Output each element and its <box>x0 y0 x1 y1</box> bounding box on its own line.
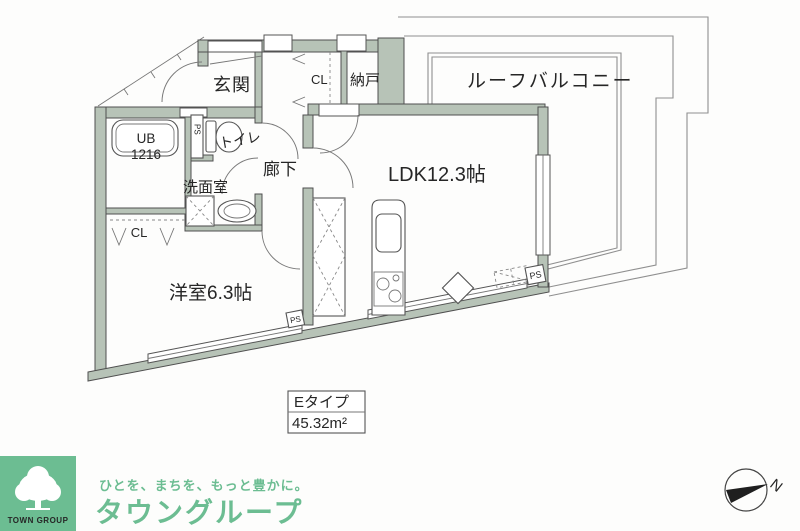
site-boundary-line <box>98 37 204 106</box>
lower-closet-marks <box>110 220 188 245</box>
logo-tagline: ひとを、まちを、もっと豊かに。 <box>99 478 309 493</box>
balcony-outline <box>398 17 708 296</box>
type-name: Eタイプ <box>294 394 349 411</box>
toilet-tank <box>206 121 216 152</box>
floorplan-canvas: PS PS 玄関 CL 納戸 ルーフバルコニー トイレ UB 1216 PS 廊… <box>0 0 800 531</box>
compass-needle-icon <box>726 484 768 503</box>
compass-north-label: N <box>767 476 786 496</box>
label-cl-lower: CL <box>131 225 148 240</box>
label-nando: 納戸 <box>350 72 380 89</box>
label-ub-size: 1216 <box>131 147 161 162</box>
label-ps-strip: PS <box>193 124 202 135</box>
label-ldk: LDK12.3帖 <box>388 163 486 186</box>
label-ub: UB <box>137 131 156 146</box>
label-cl-upper: CL <box>311 72 328 87</box>
compass: N <box>725 469 786 511</box>
label-genkan: 玄関 <box>213 75 251 95</box>
footer-logo: TOWN GROUP ひとを、まちを、もっと豊かに。 タウングループ <box>0 456 309 531</box>
type-box: Eタイプ 45.32m² <box>288 391 365 433</box>
logo-square-label: TOWN GROUP <box>8 516 69 525</box>
floorplan-page: PS PS 玄関 CL 納戸 ルーフバルコニー トイレ UB 1216 PS 廊… <box>0 0 800 531</box>
storage-column <box>313 198 345 316</box>
pipe-space-strip <box>191 115 203 158</box>
type-area: 45.32m² <box>292 415 347 432</box>
logo-brand: タウングループ <box>95 497 303 528</box>
label-senmenshitsu: 洗面室 <box>183 179 228 196</box>
kitchen-sink <box>376 214 401 252</box>
label-yoshitsu: 洋室6.3帖 <box>169 282 252 304</box>
label-rouka: 廊下 <box>263 160 297 179</box>
label-roof-balcony: ルーフバルコニー <box>467 71 633 92</box>
